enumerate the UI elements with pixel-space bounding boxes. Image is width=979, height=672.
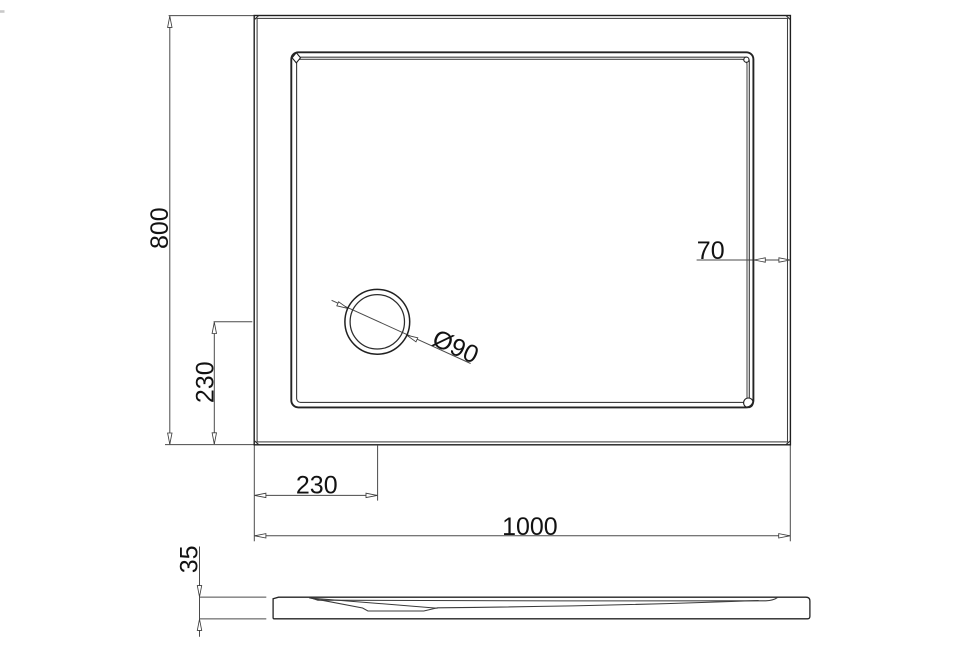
svg-text:230: 230 (192, 361, 220, 403)
svg-text:Ø90: Ø90 (428, 324, 483, 369)
svg-text:70: 70 (697, 237, 725, 265)
svg-text:35: 35 (175, 545, 203, 573)
svg-text:230: 230 (296, 471, 338, 499)
svg-text:800: 800 (146, 207, 174, 249)
svg-text:1000: 1000 (502, 513, 558, 541)
